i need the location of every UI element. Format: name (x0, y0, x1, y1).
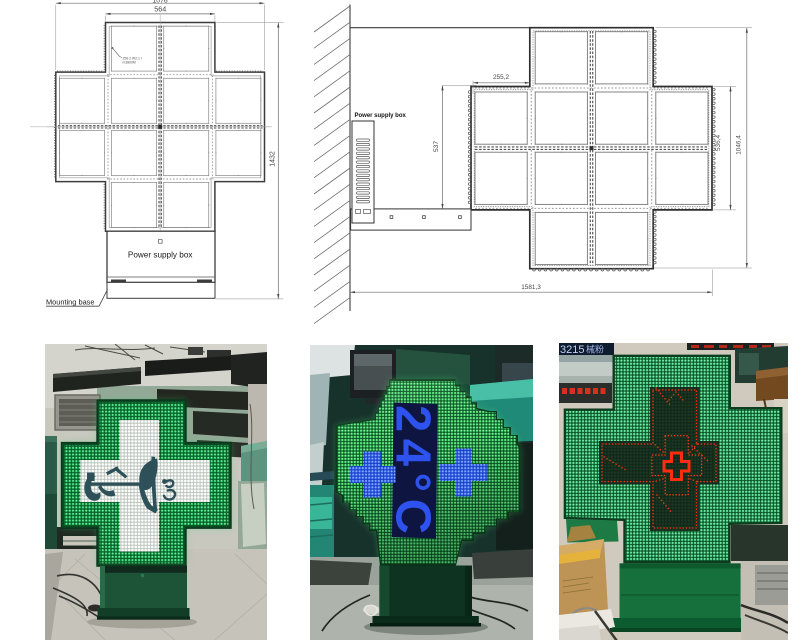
svg-text:536,4: 536,4 (715, 135, 722, 151)
svg-text:Mounting base: Mounting base (46, 298, 94, 307)
svg-text:564: 564 (154, 5, 166, 14)
svg-text:3215: 3215 (560, 344, 584, 356)
svg-text:1046,4: 1046,4 (736, 135, 743, 155)
svg-text:械粉: 械粉 (586, 344, 604, 355)
svg-text:1432: 1432 (270, 151, 277, 167)
svg-text:255,2: 255,2 (493, 74, 509, 81)
svg-text:Power supply box: Power supply box (128, 251, 193, 260)
svg-text:537: 537 (433, 141, 440, 152)
svg-text:Power supply box: Power supply box (355, 113, 407, 119)
svg-text:m3800M: m3800M (123, 61, 136, 65)
svg-text:1581,3: 1581,3 (521, 284, 541, 291)
